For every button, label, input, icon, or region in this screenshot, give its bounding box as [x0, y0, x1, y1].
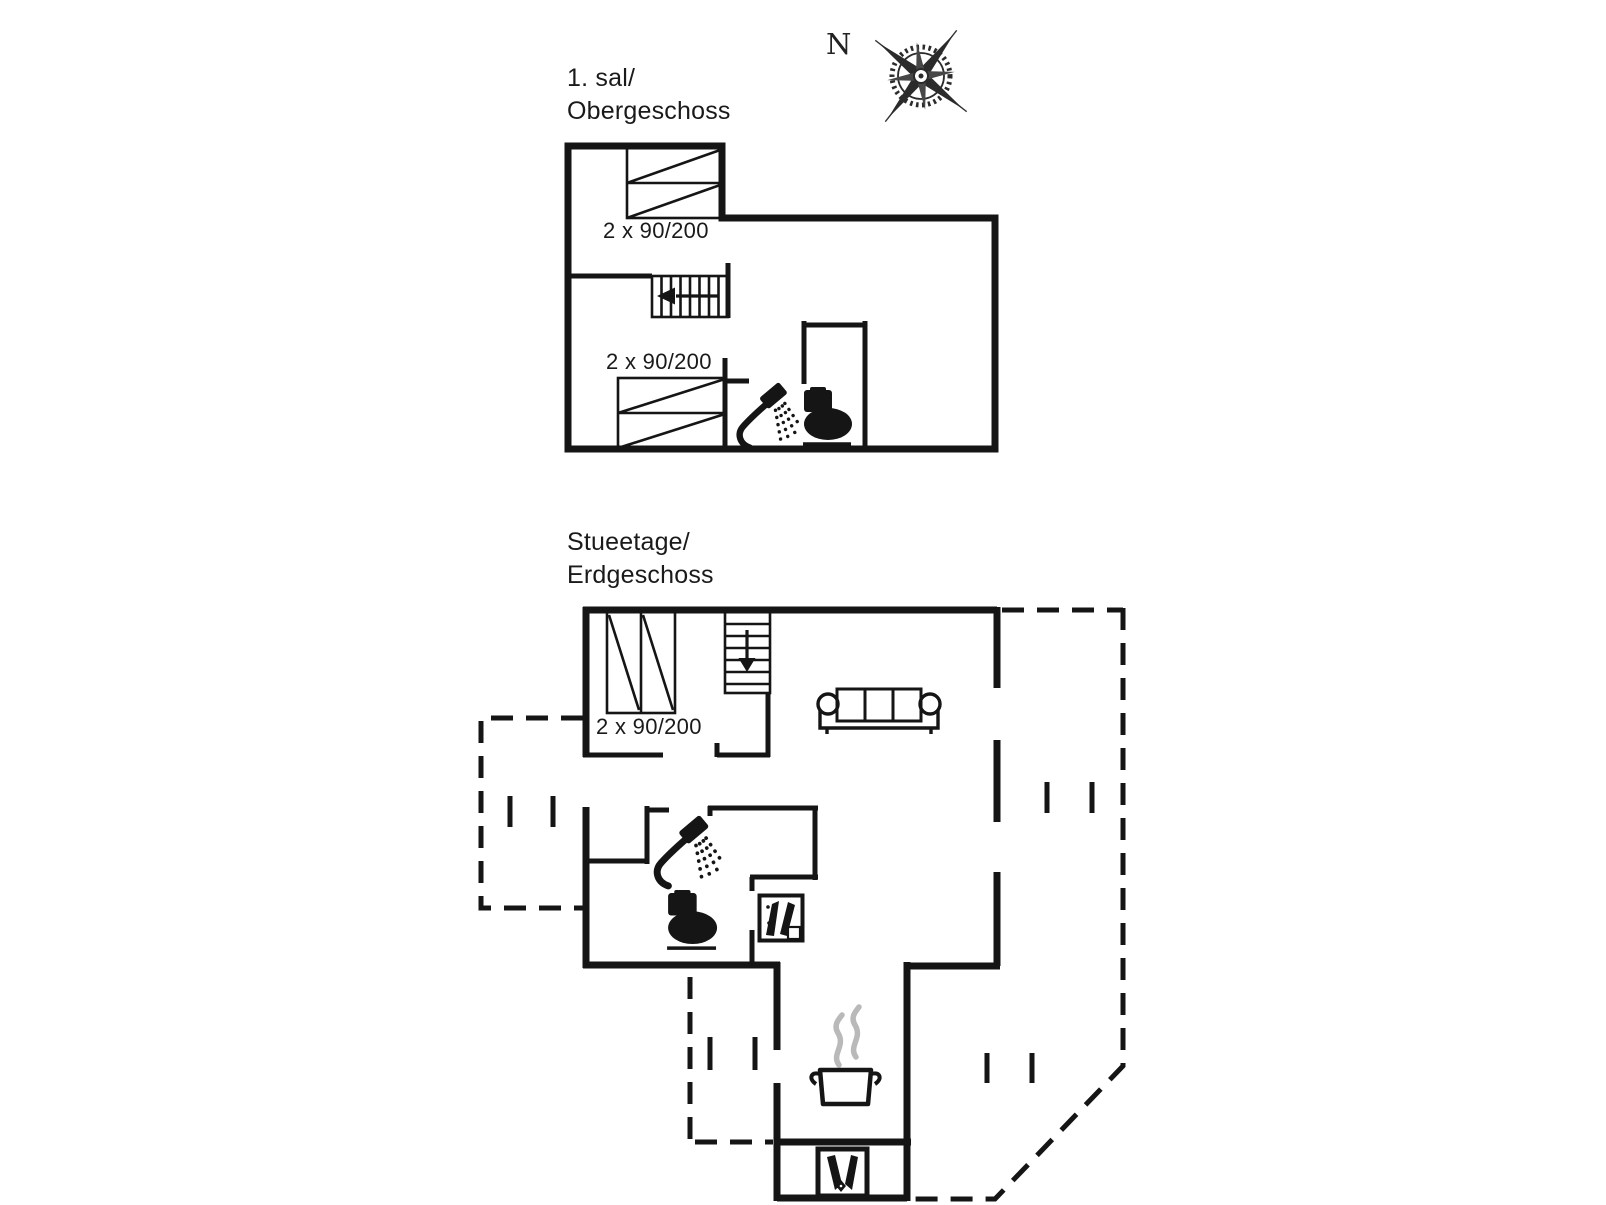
- sofa-icon: [818, 689, 940, 734]
- upper-outer-walls: [568, 146, 995, 449]
- floorplan-drawing: [0, 0, 1606, 1205]
- upper-bunk-bed-bottom-icon: [618, 378, 725, 448]
- washing-machine-icon: [760, 896, 803, 941]
- ground-floor-title: Stueetage/ Erdgeschoss: [567, 526, 714, 591]
- shower-icon: [657, 815, 723, 886]
- ground-floor-plan: [481, 607, 1123, 1201]
- terrace-outline-bottom-left: [690, 977, 773, 1143]
- ground-staircase-icon: [725, 612, 770, 693]
- terrace-outline-left: [481, 718, 583, 908]
- terrace-outline-right: [908, 608, 1123, 1199]
- floorplan-canvas: N 1. sal/ Obergeschoss 2 x 90/200 2 x 90…: [0, 0, 1606, 1205]
- shower-icon: [740, 382, 801, 448]
- upper-staircase-icon: [652, 276, 728, 317]
- upper-floor-plan: [568, 146, 995, 449]
- toilet-icon: [803, 387, 852, 444]
- stove-pot-icon: [811, 1070, 879, 1104]
- compass-rose-icon: [875, 30, 967, 122]
- fireplace-icon: [818, 1149, 867, 1196]
- upper-bed-size-label-bottom: 2 x 90/200: [606, 349, 712, 375]
- steam-icon: [836, 1007, 859, 1065]
- upper-bunk-bed-top-icon: [627, 148, 723, 218]
- toilet-icon: [667, 890, 717, 948]
- double-bed-icon: [607, 612, 675, 713]
- north-label: N: [826, 27, 851, 61]
- upper-floor-title: 1. sal/ Obergeschoss: [567, 62, 731, 127]
- ground-bed-size-label: 2 x 90/200: [596, 714, 702, 740]
- upper-bed-size-label-top: 2 x 90/200: [603, 218, 709, 244]
